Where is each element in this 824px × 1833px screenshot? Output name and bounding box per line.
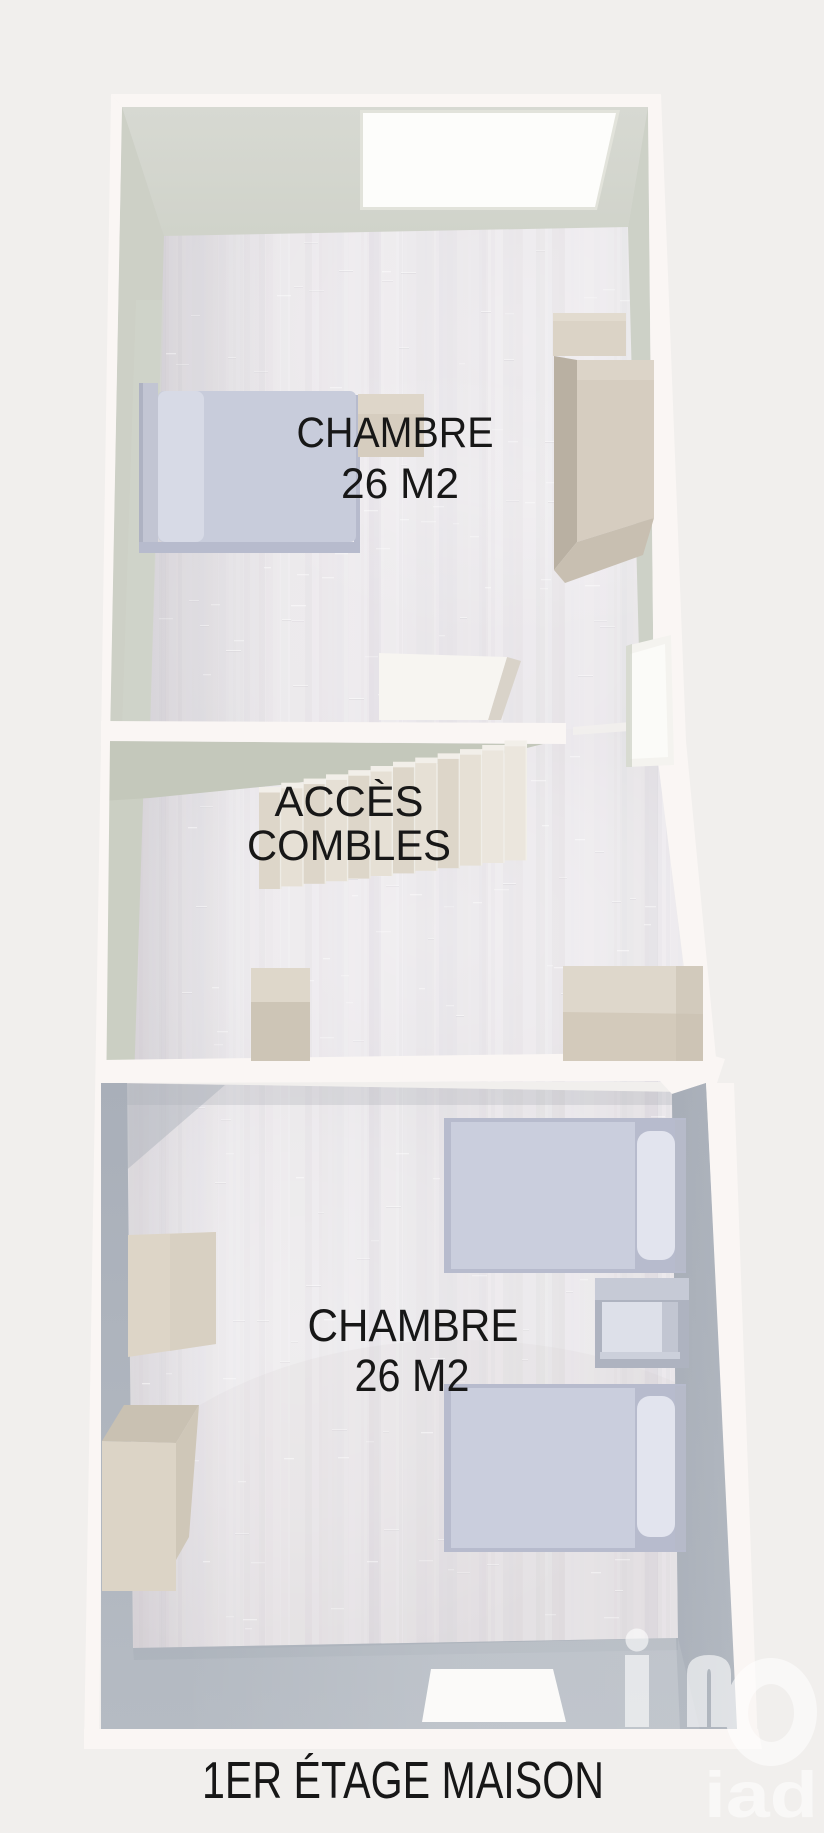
svg-text:26 M2: 26 M2	[341, 460, 459, 508]
svg-text:iad: iad	[704, 1758, 818, 1831]
svg-text:ACCÈS: ACCÈS	[275, 778, 424, 826]
svg-text:26 M2: 26 M2	[355, 1350, 470, 1401]
svg-text:CHAMBRE: CHAMBRE	[308, 1300, 519, 1351]
svg-text:CHAMBRE: CHAMBRE	[297, 409, 494, 457]
svg-text:1ER ÉTAGE MAISON: 1ER ÉTAGE MAISON	[202, 1752, 604, 1810]
svg-text:COMBLES: COMBLES	[247, 822, 451, 870]
